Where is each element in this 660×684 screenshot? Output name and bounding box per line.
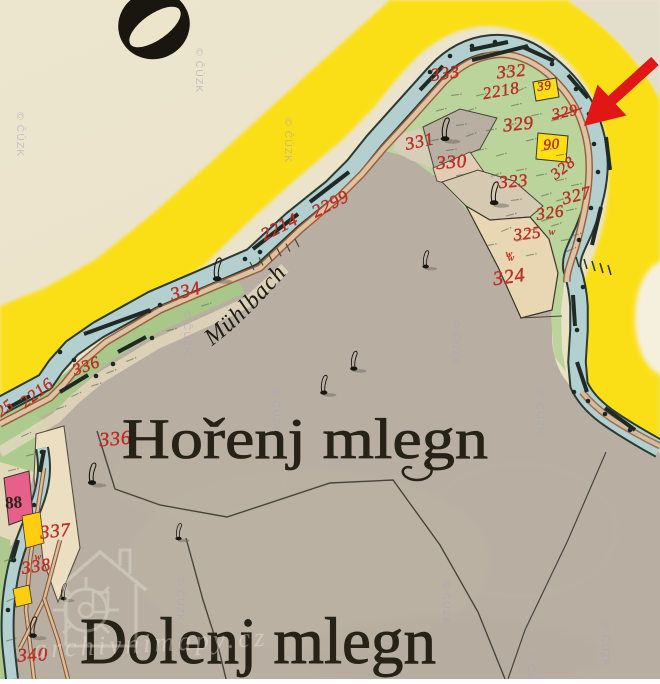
svg-text:333: 333 (428, 61, 461, 85)
svg-text:330: 330 (434, 151, 467, 174)
svg-text:w: w (549, 227, 556, 238)
svg-text:323: 323 (497, 170, 529, 193)
svg-text:Hořenj mlegn: Hořenj mlegn (122, 408, 488, 471)
svg-text:324: 324 (491, 264, 527, 290)
svg-text:© ČÚZK: © ČÚZK (599, 622, 612, 667)
svg-text:326: 326 (534, 201, 565, 224)
svg-text:88: 88 (4, 492, 22, 512)
svg-text:© ČÚZK: © ČÚZK (282, 118, 295, 163)
svg-text:© ČÚZK: © ČÚZK (440, 580, 453, 625)
svg-text:© ČÚZK: © ČÚZK (174, 577, 187, 622)
svg-text:337: 337 (38, 519, 73, 543)
svg-text:© ČÚZK: © ČÚZK (534, 390, 547, 435)
svg-text:© ČÚZK: © ČÚZK (193, 48, 206, 93)
svg-text:© ČÚZK: © ČÚZK (450, 320, 463, 365)
svg-text:90: 90 (543, 136, 561, 153)
svg-text:© ČÚZK: © ČÚZK (14, 112, 27, 157)
svg-text:39: 39 (535, 77, 553, 94)
svg-text:329: 329 (501, 112, 535, 136)
svg-text:© ČÚZK: © ČÚZK (181, 310, 194, 355)
svg-text:© ČÚZK: © ČÚZK (525, 652, 538, 679)
svg-text:325: 325 (512, 223, 543, 245)
svg-text:w: w (506, 249, 513, 260)
svg-text:© ČÚZK: © ČÚZK (270, 388, 283, 433)
svg-text:w: w (35, 552, 42, 563)
